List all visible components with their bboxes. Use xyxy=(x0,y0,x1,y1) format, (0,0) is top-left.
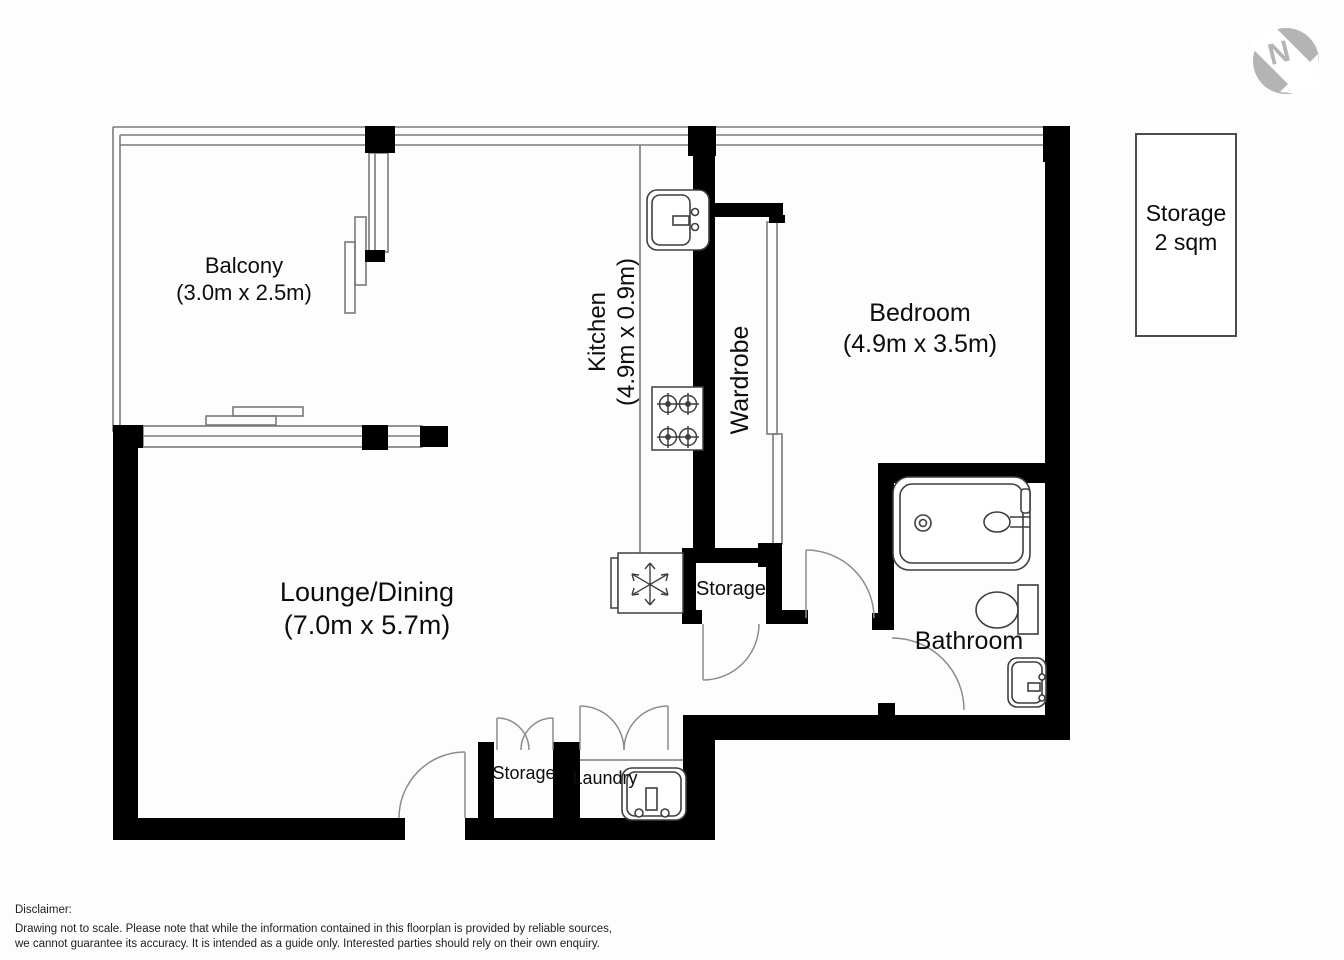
kitchen-sink-icon xyxy=(647,190,709,250)
balcony-dims: (3.0m x 2.5m) xyxy=(139,280,349,307)
lounge-dims: (7.0m x 5.7m) xyxy=(217,609,517,642)
wardrobe-label: Wardrobe xyxy=(725,300,757,460)
bathroom-sink-icon xyxy=(1008,658,1046,707)
balcony-label: Balcony (3.0m x 2.5m) xyxy=(139,253,349,307)
bathroom-label: Bathroom xyxy=(869,626,1069,657)
laundry-name: Laundry xyxy=(555,768,655,790)
stove-icon xyxy=(652,387,703,450)
kitchen-name: Kitchen xyxy=(583,222,612,442)
north-compass-icon: N xyxy=(1250,24,1322,96)
wardrobe-name: Wardrobe xyxy=(725,300,756,460)
lounge-name: Lounge/Dining xyxy=(217,576,517,609)
bathroom-name: Bathroom xyxy=(869,626,1069,657)
bathtub-icon xyxy=(893,477,1030,570)
bedroom-dims: (4.9m x 3.5m) xyxy=(795,329,1045,360)
bedroom-label: Bedroom (4.9m x 3.5m) xyxy=(795,298,1045,359)
hall-storage-label: Storage xyxy=(681,577,781,601)
kitchen-label: Kitchen (4.9m x 0.9m) xyxy=(583,222,647,442)
laundry-label: Laundry xyxy=(555,768,655,790)
hall-storage-name: Storage xyxy=(681,577,781,601)
storage-unit-label: Storage xyxy=(1146,199,1227,228)
fridge-icon xyxy=(611,553,683,613)
disclaimer-line2: we cannot guarantee its accuracy. It is … xyxy=(15,937,612,952)
disclaimer: Disclaimer: Drawing not to scale. Please… xyxy=(15,903,612,952)
storage-unit-box: Storage 2 sqm xyxy=(1135,133,1237,337)
disclaimer-line1: Drawing not to scale. Please note that w… xyxy=(15,922,612,937)
floorplan-page: N Balcony (3.0m x 2.5m) Lounge/Dining (7… xyxy=(0,0,1344,960)
bedroom-name: Bedroom xyxy=(795,298,1045,329)
storage-unit-area: 2 sqm xyxy=(1155,228,1218,257)
balcony-name: Balcony xyxy=(139,253,349,280)
lounge-label: Lounge/Dining (7.0m x 5.7m) xyxy=(217,576,517,642)
kitchen-dims: (4.9m x 0.9m) xyxy=(612,222,641,442)
disclaimer-heading: Disclaimer: xyxy=(15,903,612,918)
